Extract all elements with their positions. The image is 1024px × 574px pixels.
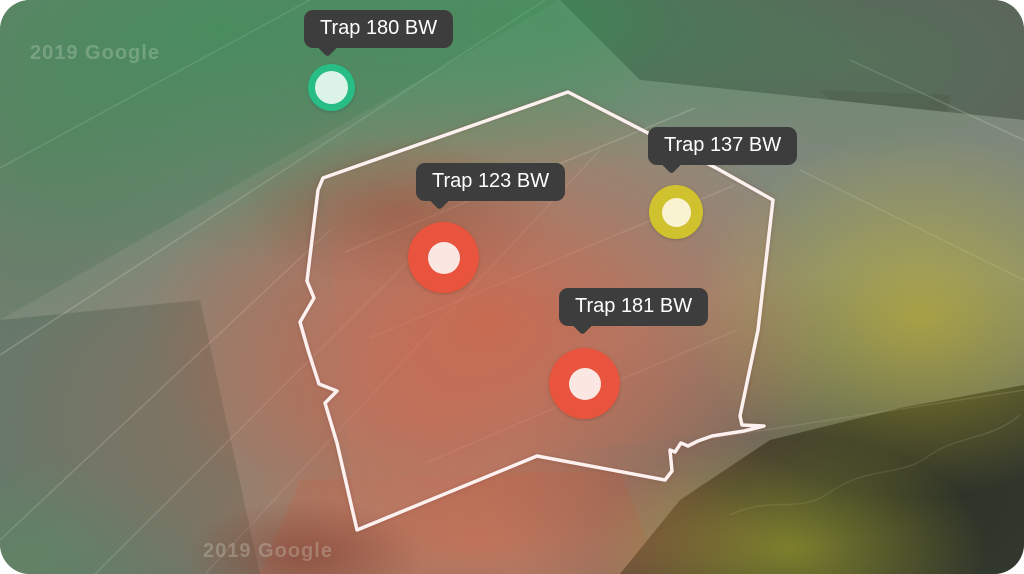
trap-marker-core: [662, 198, 691, 227]
trap-marker-180[interactable]: [308, 64, 355, 111]
trap-marker-core: [428, 242, 460, 274]
field-boundary-polygon[interactable]: [300, 92, 773, 530]
trap-marker-core: [315, 71, 348, 104]
map-canvas[interactable]: 2019 Google 2019 Google Trap 180 BW Trap…: [0, 0, 1024, 574]
trap-marker-181[interactable]: [549, 348, 620, 419]
field-boundary: [0, 0, 1024, 574]
trap-marker-core: [569, 368, 601, 400]
trap-marker-137[interactable]: [649, 185, 703, 239]
trap-marker-123[interactable]: [408, 222, 479, 293]
